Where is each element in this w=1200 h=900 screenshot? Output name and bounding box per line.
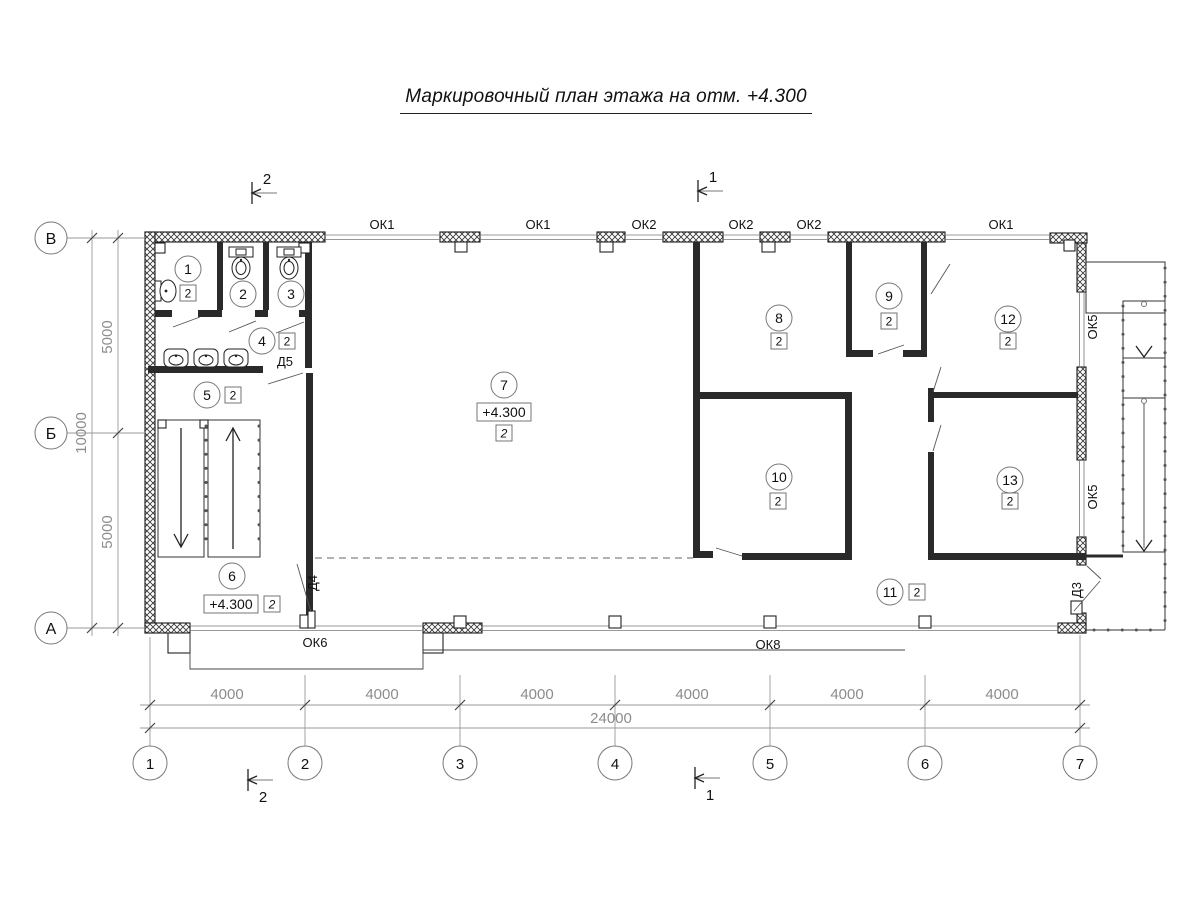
sink-fixture	[194, 349, 218, 367]
toilet-fixture	[277, 247, 301, 279]
room-label-7: 7 +4.300 2	[477, 372, 531, 441]
room-label-11: 11 2	[877, 579, 925, 605]
window-label-ok1: ОК1	[370, 217, 395, 232]
section-mark-2-bottom: 2	[248, 769, 273, 806]
section-mark-2-top: 2	[252, 171, 277, 204]
axis-col-label: 5	[766, 756, 774, 773]
dim-bottom-total: 24000	[590, 710, 632, 727]
room-label-3: 3	[278, 281, 304, 307]
svg-text:2: 2	[268, 598, 276, 612]
axis-row-label: Б	[46, 426, 57, 443]
axis-row-label: В	[46, 231, 57, 248]
room-label-4: 4 2	[249, 328, 295, 354]
svg-text:11: 11	[883, 584, 898, 600]
room-label-1: 1 2	[175, 256, 201, 301]
axis-col-label: 3	[456, 756, 464, 773]
drawing-sheet: Маркировочный план этажа на отм. +4.300	[0, 0, 1200, 900]
door-label-d5: Д5	[277, 354, 293, 369]
svg-text:2: 2	[886, 315, 893, 329]
window-label-ok6: ОК6	[303, 635, 328, 650]
svg-text:10: 10	[771, 469, 787, 485]
window-label-ok2: ОК2	[797, 217, 822, 232]
sink-fixture	[164, 349, 188, 367]
window-label-ok8: ОК8	[756, 637, 781, 652]
urinal-fixture	[155, 280, 176, 302]
svg-text:9: 9	[885, 288, 893, 304]
room-label-5: 5 2	[194, 382, 241, 408]
dim-bottom-segment: 4000	[365, 686, 398, 703]
room-label-10: 10 2	[766, 464, 792, 509]
stair-left	[158, 420, 260, 557]
axis-row-label: А	[46, 621, 57, 638]
elevation-mark: +4.300	[209, 596, 252, 612]
elevation-mark: +4.300	[482, 404, 525, 420]
room-label-2: 2	[230, 281, 256, 307]
svg-text:2: 2	[230, 389, 237, 403]
svg-text:2: 2	[239, 286, 247, 302]
svg-text:2: 2	[914, 586, 921, 600]
dim-left-segment: 5000	[99, 515, 116, 548]
section-marks: 2 1 2 1	[248, 169, 723, 806]
svg-text:8: 8	[775, 310, 783, 326]
window-label-ok1: ОК1	[989, 217, 1014, 232]
svg-text:5: 5	[203, 387, 211, 403]
window-label-ok1: ОК1	[526, 217, 551, 232]
dim-bottom-segment: 4000	[520, 686, 553, 703]
door-label-d4: Д4	[305, 575, 320, 591]
axis-col-label: 1	[146, 756, 154, 773]
svg-text:2: 2	[1007, 495, 1014, 509]
room-label-13: 13 2	[997, 467, 1023, 509]
dim-left-total: 10000	[73, 412, 90, 454]
svg-text:7: 7	[500, 377, 508, 393]
svg-text:13: 13	[1002, 472, 1018, 488]
porch-outline	[190, 633, 905, 669]
axis-row-bubbles: В Б А	[35, 222, 145, 644]
room-label-9: 9 2	[876, 283, 902, 329]
svg-text:2: 2	[776, 335, 783, 349]
toilet-fixture	[229, 247, 253, 279]
window-labels: ОК1 ОК1 ОК2 ОК2 ОК2 ОК1 ОК5 ОК5 ОК6 ОК8	[303, 217, 1100, 652]
section-label: 2	[259, 789, 267, 806]
dim-bottom-segment: 4000	[830, 686, 863, 703]
floor-plan-svg: В Б А 10000 5000 5000	[0, 0, 1200, 900]
section-mark-1-bottom: 1	[695, 767, 720, 804]
window-label-ok5: ОК5	[1085, 485, 1100, 510]
window-label-ok2: ОК2	[729, 217, 754, 232]
axis-col-label: 2	[301, 756, 309, 773]
svg-text:3: 3	[287, 286, 295, 302]
svg-text:2: 2	[185, 287, 192, 301]
dim-bottom-segment: 4000	[675, 686, 708, 703]
sink-fixture	[224, 349, 248, 367]
window-label-ok5: ОК5	[1085, 315, 1100, 340]
room-label-12: 12 2	[995, 306, 1021, 349]
svg-text:2: 2	[284, 335, 291, 349]
room-labels: 1 2 2 3 4 2 5 2	[175, 256, 1023, 613]
door-label-d3: Д3	[1069, 582, 1084, 598]
section-label: 1	[706, 787, 714, 804]
axis-col-label: 7	[1076, 756, 1084, 773]
window-glazing	[190, 235, 1084, 631]
svg-text:4: 4	[258, 333, 266, 349]
room-label-8: 8 2	[766, 305, 792, 349]
svg-text:2: 2	[500, 427, 508, 441]
window-label-ok2: ОК2	[632, 217, 657, 232]
dim-left-segment: 5000	[99, 320, 116, 353]
section-mark-1-top: 1	[698, 169, 723, 202]
axis-col-label: 4	[611, 756, 619, 773]
svg-text:12: 12	[1000, 311, 1016, 327]
door-labels: Д5 Д4 Д3	[277, 354, 1084, 598]
bottom-dimensions: 4000 4000 4000 4000 4000 4000 24000 1 2 …	[133, 635, 1097, 780]
dim-bottom-segment: 4000	[985, 686, 1018, 703]
axis-col-label: 6	[921, 756, 929, 773]
svg-text:6: 6	[228, 568, 236, 584]
svg-text:2: 2	[775, 495, 782, 509]
room-label-6: 6 +4.300 2	[204, 563, 280, 613]
section-label: 2	[263, 171, 271, 188]
svg-text:1: 1	[184, 261, 192, 277]
dim-bottom-segment: 4000	[210, 686, 243, 703]
svg-text:2: 2	[1005, 335, 1012, 349]
section-label: 1	[709, 169, 717, 186]
